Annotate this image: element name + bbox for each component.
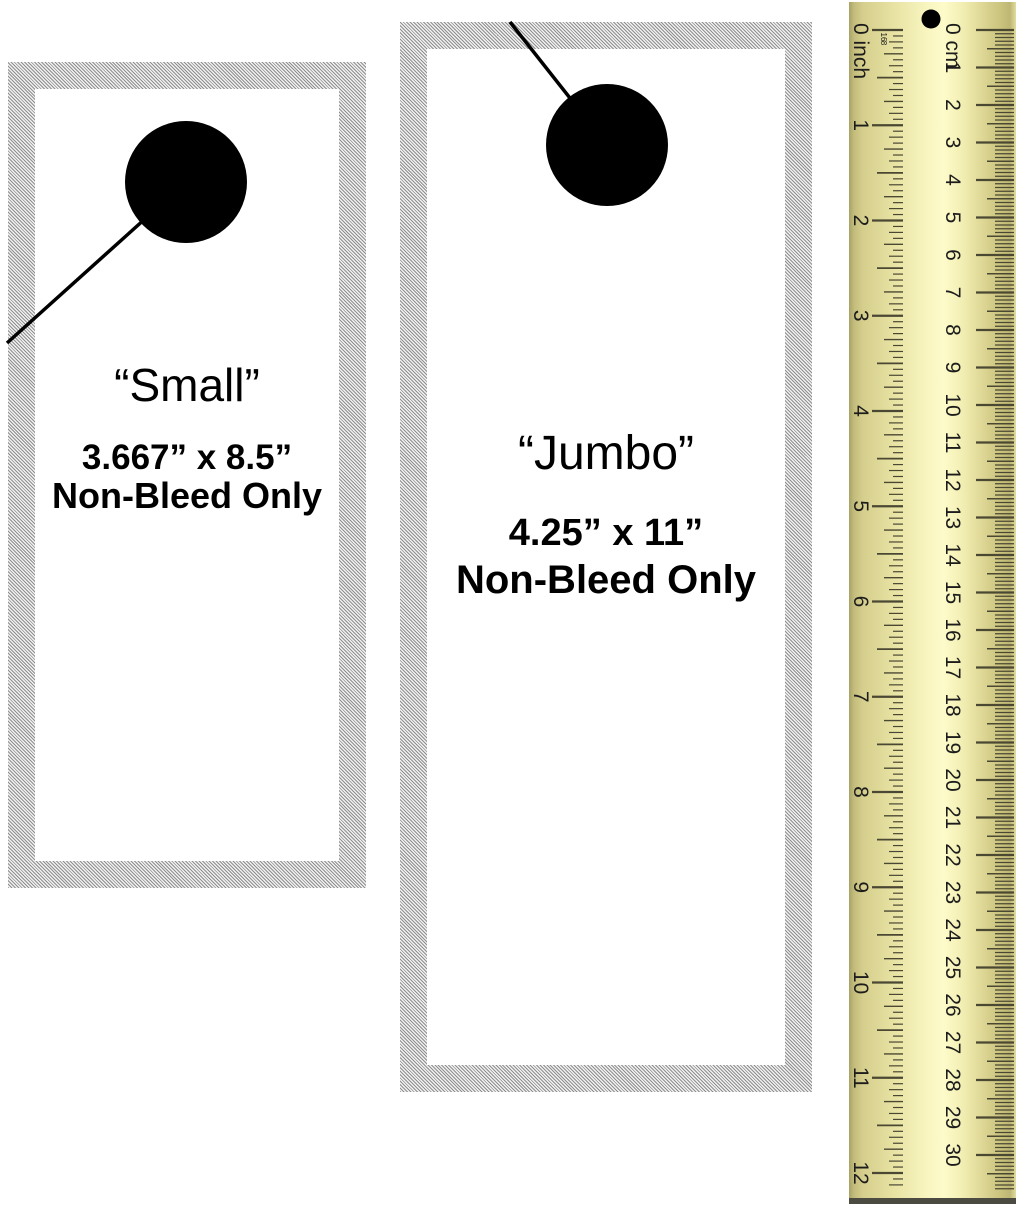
inch-number: 12	[849, 1161, 872, 1184]
inch-number: 7	[849, 691, 872, 703]
jumbo-hanger-template: “Jumbo” 4.25” x 11” Non-Bleed Only	[400, 22, 812, 1092]
cm-number: 23	[941, 881, 964, 904]
cm-number: 22	[941, 843, 964, 866]
inch-zero-label: 0 inch	[849, 23, 872, 79]
cm-tick-marks	[976, 30, 1014, 1189]
cm-number: 2	[941, 99, 964, 111]
cm-number: 16	[941, 618, 964, 641]
small-hanger-template: “Small” 3.667” x 8.5” Non-Bleed Only	[8, 62, 366, 888]
small-hanger-dimensions: 3.667” x 8.5”	[8, 440, 366, 475]
cm-number: 11	[941, 432, 964, 454]
inch-number: 11	[849, 1067, 872, 1089]
cm-number: 9	[941, 362, 964, 374]
jumbo-hanger-note: Non-Bleed Only	[400, 560, 812, 600]
small-hanger-note: Non-Bleed Only	[8, 478, 366, 514]
cm-number: 26	[941, 993, 964, 1016]
cm-number: 7	[941, 287, 964, 299]
inch-number: 8	[849, 786, 872, 798]
cm-number: 19	[941, 731, 964, 754]
inch-number: 1	[849, 119, 872, 131]
jumbo-hanger-face	[427, 49, 785, 1065]
cm-number: 18	[941, 693, 964, 716]
inch-number: 2	[849, 215, 872, 227]
inch-eighth-label: 8	[879, 41, 888, 46]
cm-number: 27	[941, 1031, 964, 1054]
inch-number-labels: 0 inch168123456789101112	[849, 23, 888, 1185]
inch-number: 4	[849, 405, 872, 417]
cm-number: 12	[941, 468, 964, 491]
small-hanger-title: “Small”	[8, 362, 366, 408]
jumbo-hanger-title: “Jumbo”	[400, 430, 812, 478]
inch-number: 10	[849, 971, 872, 994]
cm-number: 3	[941, 137, 964, 149]
cm-number: 14	[941, 543, 964, 567]
cm-number: 29	[941, 1106, 964, 1129]
ruler-bottom-edge	[849, 1198, 1016, 1204]
ruler: 0 inch1681234567891011120 cm123456789101…	[849, 2, 1016, 1204]
inch-tick-marks	[872, 30, 903, 1185]
cm-number: 4	[941, 174, 964, 186]
cm-number: 10	[941, 393, 964, 416]
cm-number: 13	[941, 506, 964, 529]
inch-number: 5	[849, 500, 872, 512]
cm-number: 1	[941, 62, 964, 74]
cm-number-labels: 0 cm123456789101112131415161718192021222…	[941, 23, 964, 1167]
cm-number: 21	[941, 806, 964, 829]
cm-number: 8	[941, 324, 964, 336]
cm-number: 30	[941, 1143, 964, 1166]
cm-number: 15	[941, 581, 964, 604]
cm-number: 6	[941, 249, 964, 261]
inch-number: 6	[849, 596, 872, 608]
door-hanger-template-sheet: “Small” 3.667” x 8.5” Non-Bleed Only “Ju…	[0, 0, 1016, 1205]
inch-number: 9	[849, 881, 872, 893]
cm-number: 20	[941, 768, 964, 791]
cm-number: 5	[941, 212, 964, 224]
ruler-hang-hole-icon	[922, 10, 941, 29]
inch-number: 3	[849, 310, 872, 322]
cm-number: 25	[941, 956, 964, 979]
jumbo-hanger-dimensions: 4.25” x 11”	[400, 514, 812, 552]
cm-number: 28	[941, 1068, 964, 1091]
ruler-scale: 0 inch1681234567891011120 cm123456789101…	[849, 2, 1016, 1204]
cm-number: 17	[941, 656, 964, 679]
cm-number: 24	[941, 918, 964, 942]
